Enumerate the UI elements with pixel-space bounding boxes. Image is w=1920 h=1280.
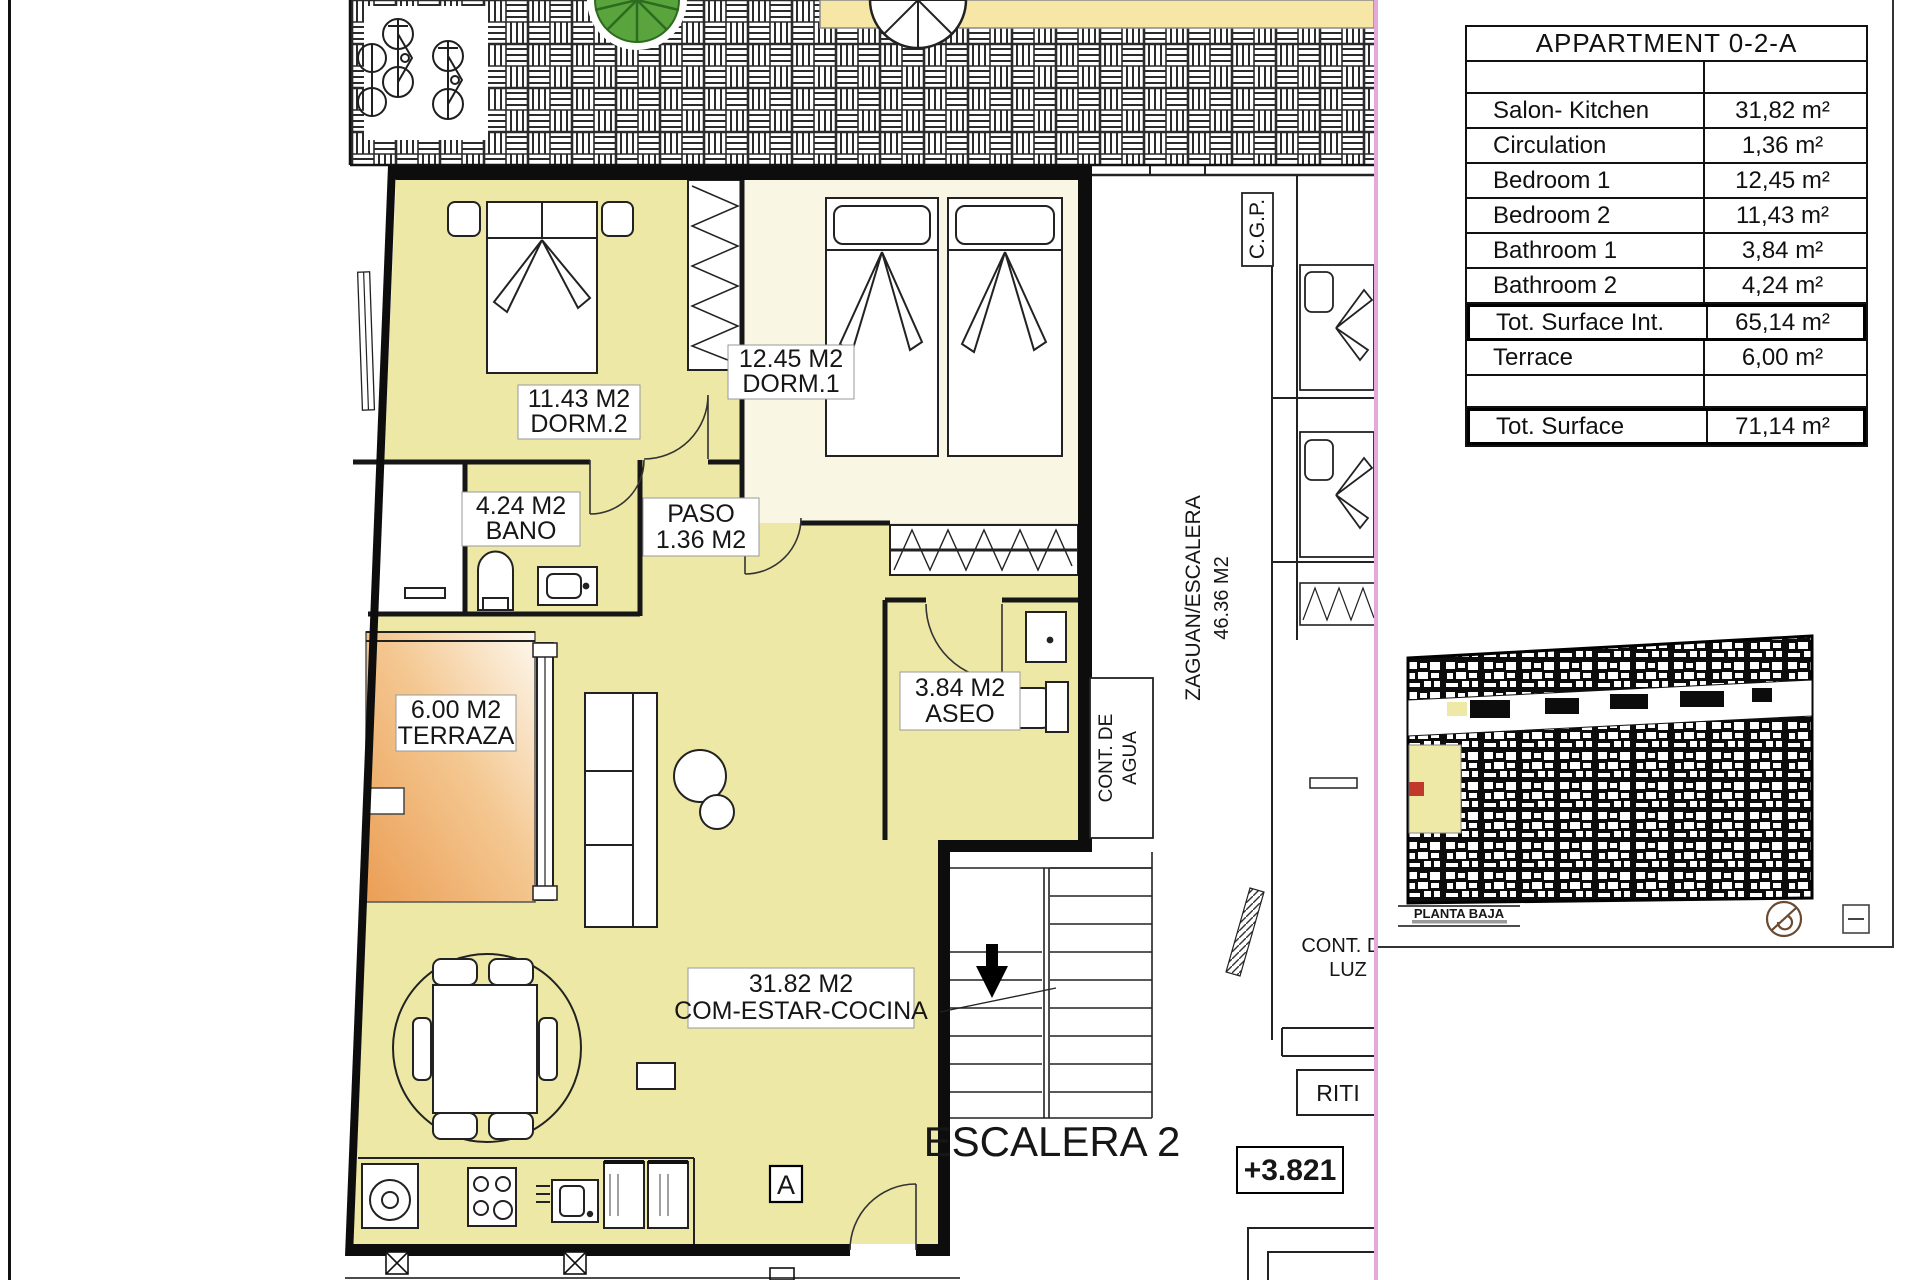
cont-agua-box: CONT. DE AGUA — [1090, 678, 1153, 838]
builder-logo-icon — [1767, 902, 1801, 936]
sliding-door-icon — [533, 643, 557, 900]
table-row-label: Terrace — [1467, 341, 1705, 374]
table-row: Bedroom 211,43 m² — [1467, 199, 1866, 234]
neighbour-shelf — [1310, 778, 1357, 788]
zaguan-label: ZAGUAN/ESCALERA 46.36 M2 — [1182, 495, 1233, 700]
svg-text:PASO: PASO — [667, 500, 735, 528]
table-row: Bedroom 112,45 m² — [1467, 164, 1866, 199]
neighbour-bed-icon — [1300, 265, 1374, 390]
svg-text:BANO: BANO — [486, 517, 557, 545]
neighbour-bed-icon — [1300, 432, 1374, 557]
mini-overview-plan: PLANTA BAJA — [1398, 636, 1869, 936]
svg-text:4.24 M2: 4.24 M2 — [476, 492, 566, 520]
table-row-value: 71,14 m² — [1708, 411, 1863, 442]
table-row: Tot. Surface71,14 m² — [1467, 408, 1866, 445]
level-label: +3.821 — [1244, 1154, 1337, 1187]
room-label-paso: PASO 1.36 M2 — [643, 498, 759, 556]
table-row-value: 3,84 m² — [1705, 234, 1866, 267]
table-row-value: 4,24 m² — [1705, 269, 1866, 302]
table-row-value: 31,82 m² — [1705, 94, 1866, 127]
twin-bed-icon — [826, 198, 938, 456]
neighbour-closet-icon — [1300, 583, 1376, 625]
svg-text:LUZ: LUZ — [1329, 959, 1367, 981]
svg-text:DORM.2: DORM.2 — [530, 410, 627, 438]
table-row: Salon- Kitchen31,82 m² — [1467, 94, 1866, 129]
table-row-label: Bedroom 2 — [1467, 199, 1705, 232]
small-table — [637, 1063, 675, 1089]
wardrobe-icon — [688, 180, 742, 370]
svg-text:1.36 M2: 1.36 M2 — [656, 526, 746, 554]
room-label-aseo: 3.84 M2 ASEO — [900, 672, 1020, 730]
cgp-label: C.G.P. — [1246, 199, 1269, 259]
table-row-value: 12,45 m² — [1705, 164, 1866, 197]
svg-text:31.82 M2: 31.82 M2 — [749, 970, 853, 998]
svg-text:AGUA: AGUA — [1120, 731, 1141, 785]
svg-text:COM-ESTAR-COCINA: COM-ESTAR-COCINA — [674, 997, 928, 1025]
table-row-value: 65,14 m² — [1708, 307, 1863, 338]
table-row-label: Bathroom 2 — [1467, 269, 1705, 302]
terrace-floor — [366, 632, 535, 902]
section-marker-a: A — [770, 1166, 802, 1202]
level-marker: +3.821 — [1237, 1147, 1343, 1193]
cgp-box: C.G.P. — [1242, 193, 1273, 266]
table-row-label — [1467, 62, 1705, 92]
floorplan-sheet: C.G.P. CONT. DE LUZ RITI CONT. DE AGUA Z… — [0, 0, 1920, 1280]
sink-icon — [538, 567, 597, 605]
partial-room-outline — [1248, 1228, 1388, 1280]
table-row: Bathroom 13,84 m² — [1467, 234, 1866, 269]
toilet-icon — [478, 551, 513, 610]
table-row — [1467, 62, 1866, 94]
area-table-title: APPARTMENT 0-2-A — [1467, 27, 1866, 62]
table-row-label: Tot. Surface Int. — [1470, 307, 1708, 338]
ramp-hatch — [1226, 888, 1264, 976]
highlight-crop-line — [1374, 0, 1378, 1280]
laundry-shelf — [405, 588, 445, 598]
pillars — [345, 1252, 960, 1280]
area-table: APPARTMENT 0-2-A Salon- Kitchen31,82 m²C… — [1465, 25, 1868, 447]
table-row-label: Tot. Surface — [1470, 411, 1708, 442]
sheet-bottom-border — [1377, 946, 1894, 948]
table-row-label: Salon- Kitchen — [1467, 94, 1705, 127]
svg-text:3.84 M2: 3.84 M2 — [915, 674, 1005, 702]
svg-text:11.43 M2: 11.43 M2 — [528, 385, 630, 413]
table-row-value: 11,43 m² — [1705, 199, 1866, 232]
table-row-label: Bedroom 1 — [1467, 164, 1705, 197]
table-row-value: 1,36 m² — [1705, 129, 1866, 162]
room-label-bano: 4.24 M2 BANO — [462, 492, 580, 546]
table-row-label: Circulation — [1467, 129, 1705, 162]
paved-courtyard — [350, 0, 1374, 165]
entry-opening — [850, 1244, 916, 1256]
svg-text:TERRAZA: TERRAZA — [398, 722, 515, 750]
mini-plan-caption: PLANTA BAJA — [1398, 906, 1520, 926]
riti-box: RITI — [1297, 1070, 1379, 1115]
cont-luz-label: CONT. DE LUZ — [1301, 935, 1394, 981]
staircase — [940, 852, 1152, 1118]
table-row-value — [1705, 62, 1866, 92]
svg-text:6.00 M2: 6.00 M2 — [411, 696, 501, 724]
room-label-dorm2: 11.43 M2 DORM.2 — [518, 385, 640, 439]
washbasin-icon — [1026, 612, 1066, 662]
sofa-icon — [585, 693, 657, 927]
side-table-icon — [700, 795, 734, 829]
table-row-label: Bathroom 1 — [1467, 234, 1705, 267]
twin-bed-icon — [948, 198, 1062, 456]
table-row-value — [1705, 376, 1866, 406]
bicycles-icon — [358, 6, 488, 140]
svg-text:46.36 M2: 46.36 M2 — [1211, 556, 1233, 639]
section-a-label: A — [777, 1170, 795, 1200]
table-row: Terrace6,00 m² — [1467, 341, 1866, 376]
riti-label: RITI — [1316, 1080, 1359, 1106]
table-row — [1467, 376, 1866, 408]
table-row-value: 6,00 m² — [1705, 341, 1866, 374]
room-label-terraza: 6.00 M2 TERRAZA — [396, 695, 516, 751]
window-icon — [358, 272, 375, 410]
escalera-label: ESCALERA 2 — [924, 1118, 1181, 1165]
svg-text:ASEO: ASEO — [925, 700, 994, 728]
planta-baja-label: PLANTA BAJA — [1414, 906, 1505, 921]
sheet-left-border — [8, 0, 11, 1280]
area-table-rows: Salon- Kitchen31,82 m²Circulation1,36 m²… — [1467, 62, 1866, 445]
table-row: Circulation1,36 m² — [1467, 129, 1866, 164]
cont-agua-label: CONT. DE — [1096, 714, 1117, 803]
table-row: Bathroom 24,24 m² — [1467, 269, 1866, 304]
table-row: Tot. Surface Int.65,14 m² — [1467, 304, 1866, 341]
svg-text:12.45 M2: 12.45 M2 — [739, 345, 843, 373]
room-label-salon: 31.82 M2 COM-ESTAR-COCINA — [674, 968, 928, 1028]
table-row-label — [1467, 376, 1705, 406]
sheet-right-border — [1892, 0, 1894, 948]
closet-icon — [890, 525, 1078, 575]
svg-text:DORM.1: DORM.1 — [742, 370, 839, 398]
svg-text:ZAGUAN/ESCALERA: ZAGUAN/ESCALERA — [1182, 495, 1205, 700]
room-label-dorm1: 12.45 M2 DORM.1 — [728, 345, 854, 399]
